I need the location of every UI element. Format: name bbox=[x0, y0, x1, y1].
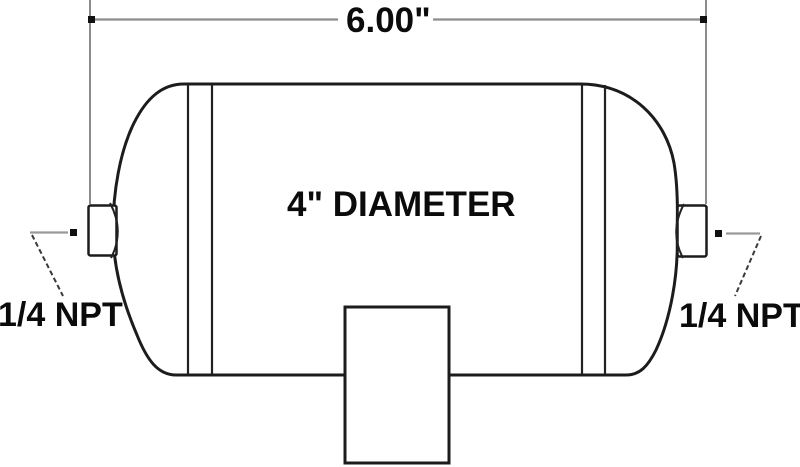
diagram-canvas: 6.00" 4" DIAMETER 1/4 NPT 1/4 NPT bbox=[0, 0, 800, 467]
left-port-label: 1/4 NPT bbox=[0, 298, 123, 332]
dimension-arrow-left bbox=[88, 16, 95, 23]
tank-drawing-svg bbox=[0, 0, 800, 467]
left-port-fitting bbox=[89, 206, 117, 256]
dimension-arrow-right bbox=[700, 16, 707, 23]
right-port-fitting bbox=[678, 206, 707, 257]
right-leader-diagonal bbox=[735, 236, 761, 296]
right-leader-arrow-dot bbox=[715, 230, 722, 237]
diameter-label: 4" DIAMETER bbox=[287, 187, 516, 222]
left-leader-arrow-dot bbox=[70, 229, 77, 236]
bottom-port-fitting bbox=[345, 307, 449, 463]
right-port-label: 1/4 NPT bbox=[679, 299, 800, 333]
width-dimension-label: 6.00" bbox=[346, 3, 431, 38]
left-leader-diagonal bbox=[32, 235, 63, 296]
